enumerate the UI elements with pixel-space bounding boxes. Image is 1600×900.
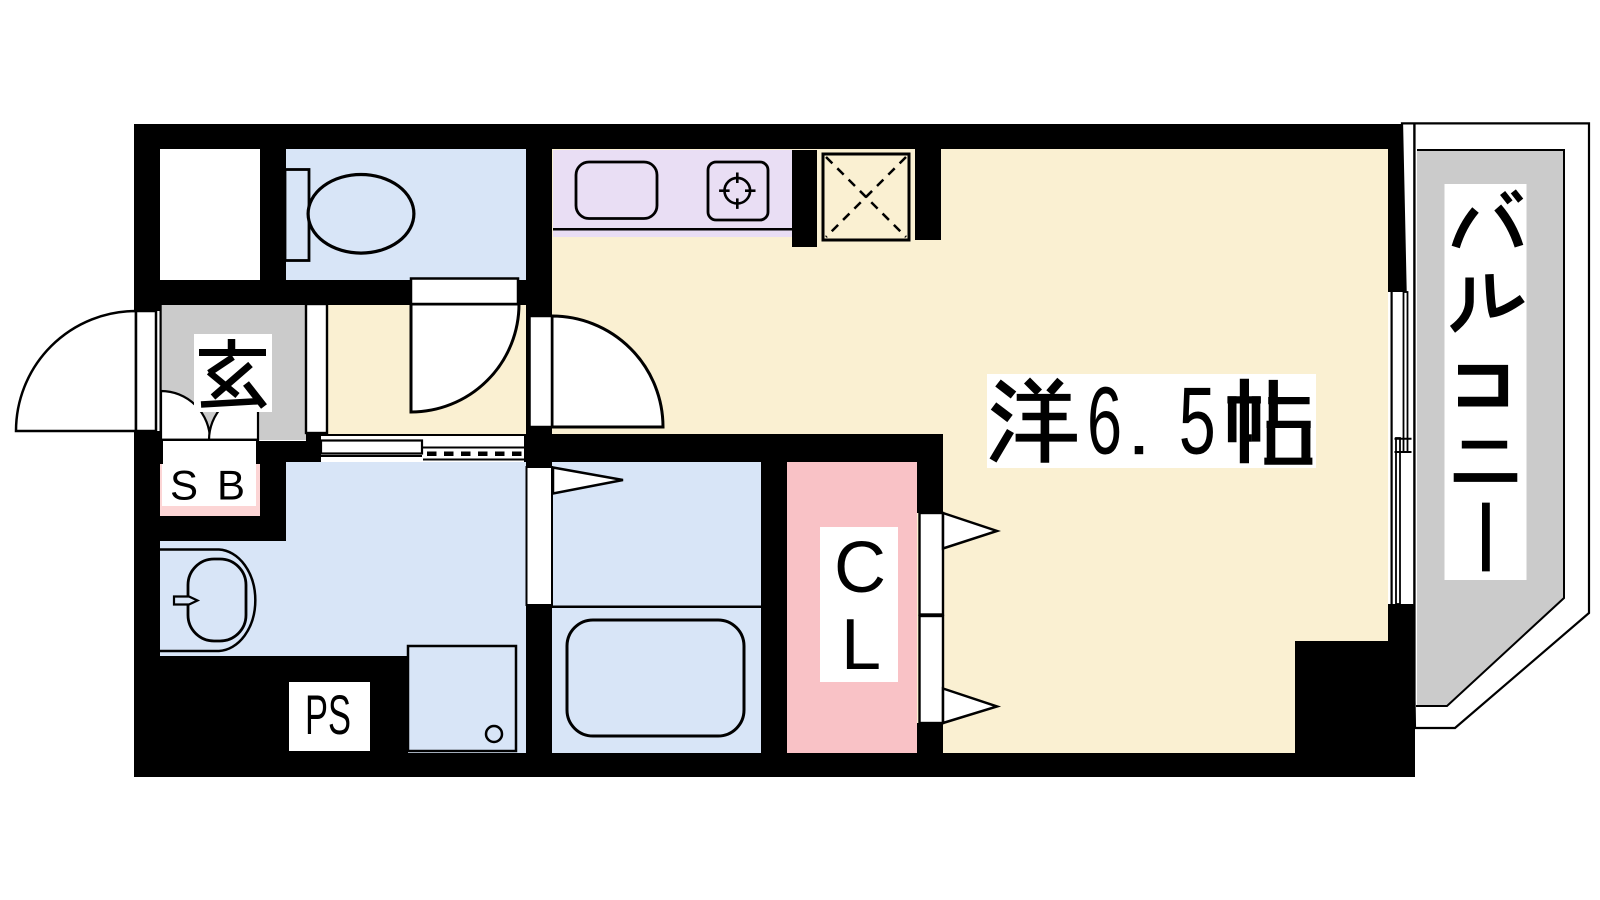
svg-text:L: L — [841, 605, 881, 685]
svg-text:PS: PS — [305, 683, 351, 746]
svg-text:SB: SB — [170, 462, 264, 509]
svg-text:C: C — [834, 528, 886, 608]
svg-text:5: 5 — [1179, 368, 1216, 475]
svg-text:6: 6 — [1087, 368, 1122, 475]
